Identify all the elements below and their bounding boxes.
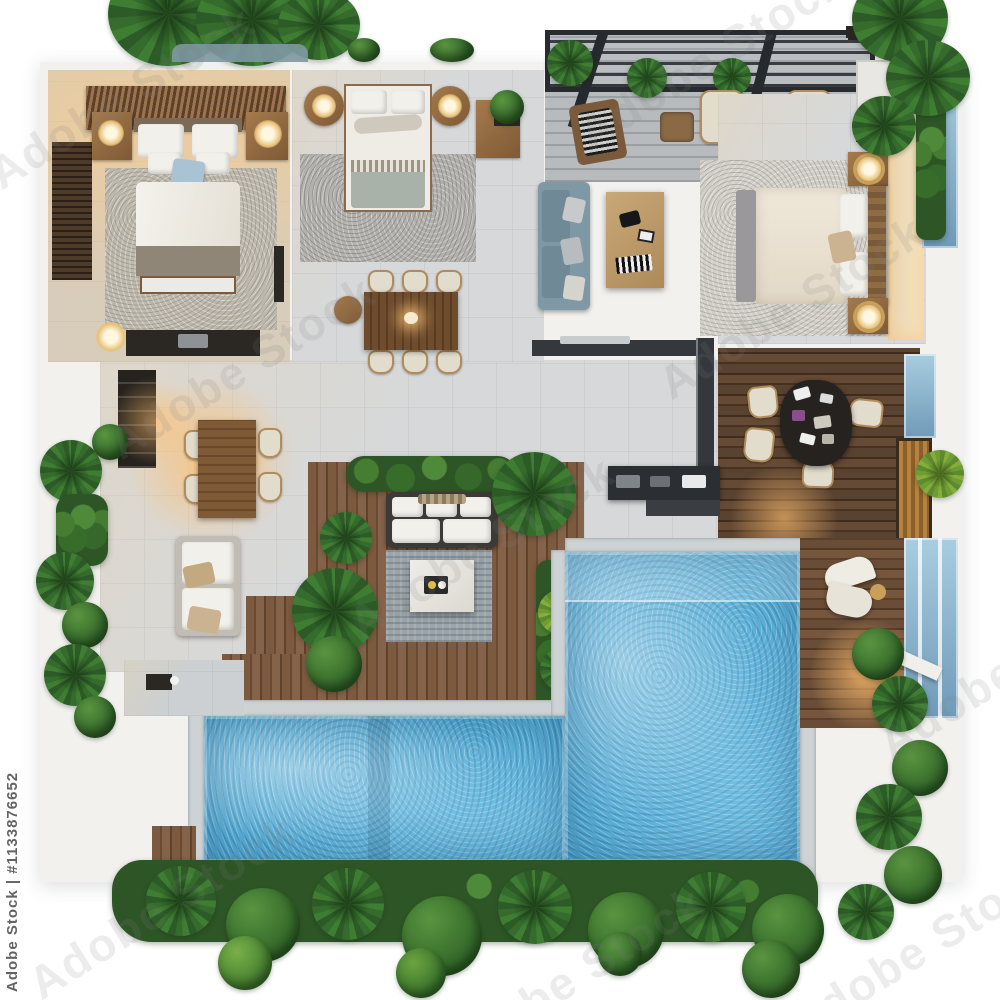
terrace-palm xyxy=(627,58,667,98)
dining-chair xyxy=(436,350,462,374)
living-room xyxy=(530,175,725,385)
foot-bench xyxy=(140,276,236,294)
tanning-shelf xyxy=(565,552,800,602)
metallic-pillow xyxy=(560,236,584,265)
hedge-palm-1 xyxy=(146,866,216,936)
bedroom-top-middle xyxy=(292,70,544,362)
tableware-purple xyxy=(792,410,805,421)
dining-chair xyxy=(368,270,394,294)
dresser xyxy=(126,330,260,356)
sink xyxy=(682,475,706,488)
dining-chair xyxy=(402,270,428,294)
dining-chair xyxy=(436,270,462,294)
tableware xyxy=(799,432,816,445)
tableware xyxy=(813,415,832,429)
gold-side-table xyxy=(870,584,886,600)
tableware xyxy=(822,434,834,444)
deck-chair xyxy=(746,385,779,420)
metallic-pillow xyxy=(562,275,585,302)
pillow xyxy=(391,90,425,114)
bush-top-2 xyxy=(430,38,474,62)
round-stool xyxy=(334,296,362,324)
appliance xyxy=(650,476,670,487)
glass-wall-east xyxy=(696,338,714,483)
master-bed xyxy=(736,186,886,306)
coffee-table xyxy=(606,192,664,288)
bedroom-top-left xyxy=(48,70,290,362)
wood-dining-table xyxy=(198,420,256,518)
striped-decor xyxy=(615,254,652,274)
watermark-side-label: Adobe Stock | #1133876652 xyxy=(4,698,21,992)
blue-gray-sofa xyxy=(538,182,590,310)
kitchen-cabinet xyxy=(646,500,720,516)
cascade-bush-1 xyxy=(852,628,904,680)
pendant-light xyxy=(404,312,418,324)
white-coffee-table xyxy=(410,560,474,612)
blanket-roll xyxy=(354,114,423,135)
lounger-seat xyxy=(823,582,874,621)
outdoor-sofa xyxy=(386,492,498,548)
hedge-palm-3 xyxy=(498,870,572,944)
topiary-1 xyxy=(218,936,272,990)
corner-palm xyxy=(852,96,916,156)
hedge-palm-4 xyxy=(676,872,746,942)
seat-cushion xyxy=(443,519,491,543)
deck-palm-top-right xyxy=(492,452,576,536)
round-lamp xyxy=(856,304,882,330)
pool-coping-big-top xyxy=(565,538,816,552)
hedge-palm-2 xyxy=(312,868,384,940)
wicker-ottoman xyxy=(660,112,694,142)
cascade-bush-3 xyxy=(884,846,942,904)
wood-headboard xyxy=(868,186,886,306)
mullion xyxy=(938,538,942,718)
pool-wood-ledge xyxy=(152,826,196,860)
white-sofa xyxy=(176,536,240,636)
round-dining-table xyxy=(780,380,852,466)
lamp xyxy=(438,94,462,118)
cascade-palm-2 xyxy=(856,784,922,850)
duvet2 xyxy=(351,172,425,208)
left-bush-3 xyxy=(92,424,128,460)
lamp-right xyxy=(254,120,282,148)
wood-lounge-chair xyxy=(568,98,628,166)
chair xyxy=(258,472,282,502)
left-lounge xyxy=(100,360,330,665)
planter-box xyxy=(146,674,172,690)
lumbar-pillow-row xyxy=(418,494,466,504)
terrace-palm xyxy=(547,40,593,86)
topiary-4 xyxy=(742,940,800,998)
topiary-2 xyxy=(396,948,446,998)
foot-bench xyxy=(736,190,756,302)
roof-edge-sliver xyxy=(172,44,308,62)
desk-plant xyxy=(490,90,524,124)
decor-book xyxy=(619,210,642,228)
pool-shadow-band xyxy=(368,716,390,862)
left-bush-2 xyxy=(74,696,116,738)
duvet xyxy=(136,182,240,256)
stone-platform xyxy=(124,660,244,716)
door-frame-aluminum xyxy=(560,336,630,344)
left-bush-1 xyxy=(62,602,108,648)
louvered-panel xyxy=(52,142,92,280)
blue-glass-window xyxy=(904,354,936,438)
tableware xyxy=(819,393,833,404)
topiary-3 xyxy=(598,932,642,976)
lamp-left xyxy=(98,120,124,146)
outdoor-kitchen-counter xyxy=(608,466,720,500)
bed2 xyxy=(344,84,432,212)
glass-wall-south xyxy=(532,340,698,356)
foot-blanket xyxy=(136,246,240,276)
tan-pillow xyxy=(186,605,222,634)
deck-chair xyxy=(742,427,775,464)
pillow xyxy=(351,90,387,114)
striped-runner xyxy=(351,160,425,172)
door-frame xyxy=(274,246,284,302)
lamp xyxy=(312,94,336,118)
pool-coping-deck-edge xyxy=(551,550,566,716)
bush-top-1 xyxy=(348,38,380,62)
pool-coping-top xyxy=(188,700,568,716)
right-palm-yellow xyxy=(916,450,964,498)
tray-item-yellow xyxy=(428,581,436,589)
deck-dining-room xyxy=(718,348,920,562)
decor-box xyxy=(637,229,655,244)
cascade-palm-1 xyxy=(872,676,928,732)
appliance xyxy=(616,475,640,488)
dining-chair xyxy=(368,350,394,374)
striped-cushion xyxy=(577,107,618,156)
floor-plan-render: Adobe Stock | #1133876652 Adobe Stock Ad… xyxy=(0,0,1000,1000)
bed xyxy=(134,118,242,294)
tan-pillow xyxy=(182,561,216,589)
chair xyxy=(258,428,282,458)
small-pot xyxy=(170,676,179,685)
tray-item-white xyxy=(438,581,446,589)
dining-chair xyxy=(402,350,428,374)
deck-chair xyxy=(848,397,885,428)
seat-cushion xyxy=(392,519,440,543)
dresser-item xyxy=(178,334,208,348)
cascade-palm-3 xyxy=(838,884,894,940)
metallic-pillow xyxy=(562,196,587,224)
lamp-dresser xyxy=(96,322,126,352)
round-lamp xyxy=(856,156,882,182)
lounge-hedge-top xyxy=(346,456,516,492)
tableware xyxy=(793,386,811,401)
sculptural-lounger xyxy=(824,560,882,622)
